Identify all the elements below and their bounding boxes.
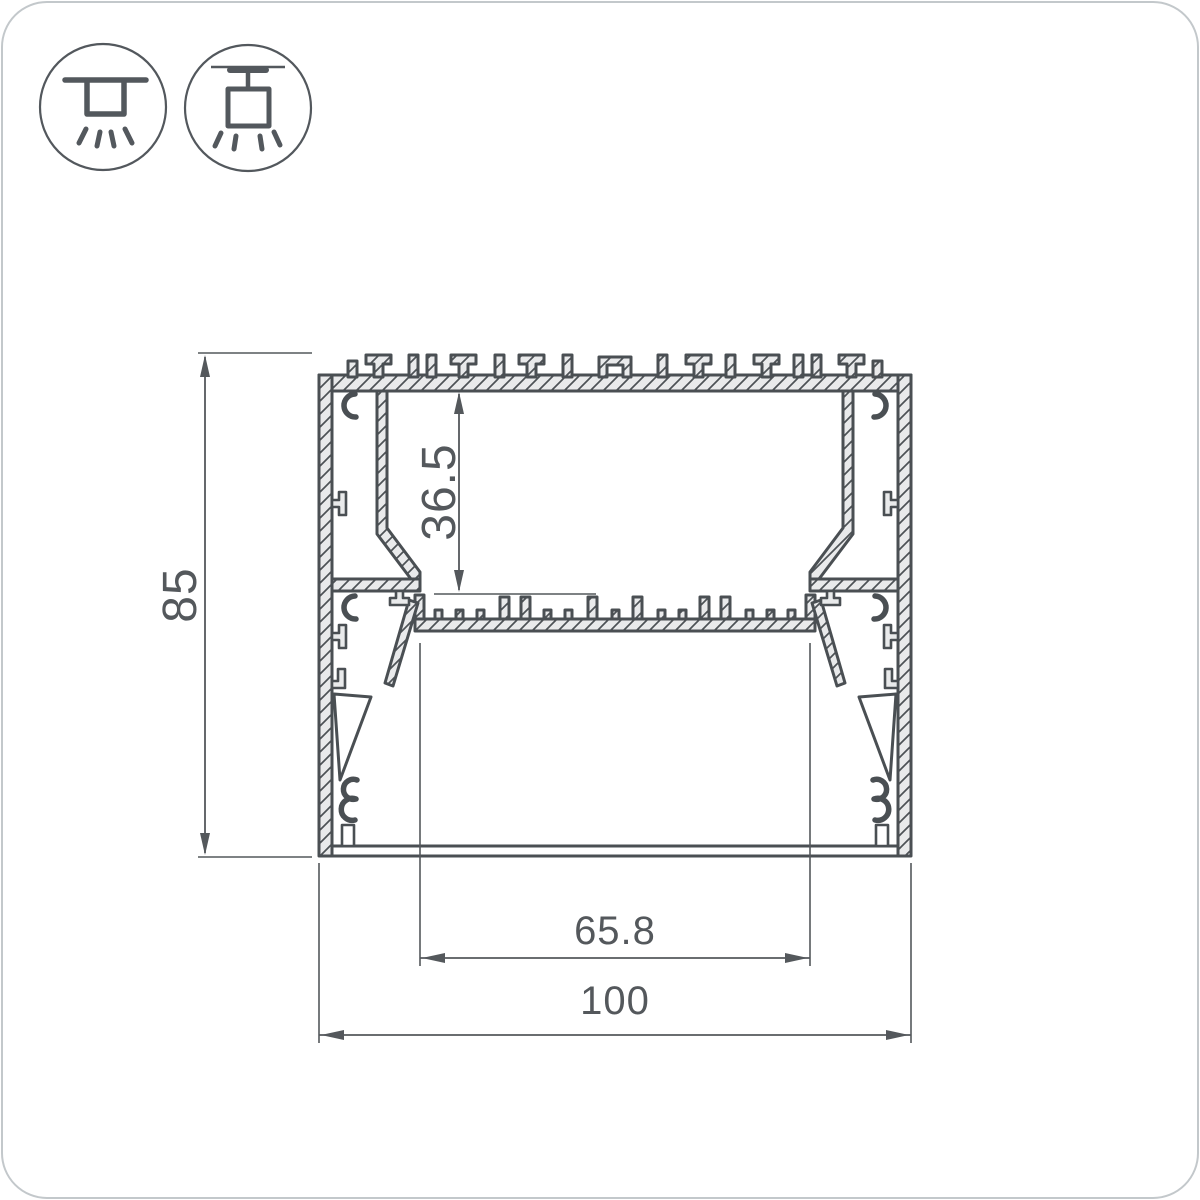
profile-cross-section bbox=[319, 355, 911, 856]
right-bracket-triangle bbox=[859, 694, 896, 780]
right-outer-wall bbox=[898, 375, 911, 856]
technical-drawing: 85 36.5 65.8 100 bbox=[3, 3, 1199, 1199]
icon-circle bbox=[40, 44, 166, 170]
middle-shelf bbox=[415, 595, 815, 631]
left-foot bbox=[342, 825, 354, 846]
dimensions: 85 36.5 65.8 100 bbox=[154, 353, 911, 1043]
dim-label-100: 100 bbox=[580, 979, 650, 1023]
left-bracket-triangle bbox=[334, 694, 371, 780]
mount-icons bbox=[40, 44, 311, 171]
surface-mount-icon bbox=[40, 44, 166, 170]
profile-box bbox=[228, 89, 269, 126]
arrow-up-icon bbox=[200, 355, 210, 377]
left-diagonal-strip bbox=[385, 600, 418, 686]
arrow-down-icon bbox=[454, 570, 464, 592]
arrow-left-icon bbox=[422, 953, 445, 963]
light-rays-icon bbox=[215, 132, 280, 149]
light-rays-icon bbox=[79, 129, 132, 146]
right-mid-ledge bbox=[810, 579, 898, 591]
dim-label-85: 85 bbox=[154, 567, 207, 622]
left-bottom-boss bbox=[341, 779, 357, 820]
arrow-left-icon bbox=[321, 1030, 344, 1040]
dim-inner-width-65-8: 65.8 bbox=[420, 643, 810, 966]
arrow-right-icon bbox=[785, 953, 808, 963]
arrow-right-icon bbox=[886, 1030, 909, 1040]
dim-width-100: 100 bbox=[319, 863, 911, 1043]
left-mid-ledge bbox=[332, 579, 420, 591]
arrow-down-icon bbox=[200, 833, 210, 855]
left-outer-wall bbox=[319, 375, 332, 856]
dim-inner-height-36-5: 36.5 bbox=[413, 392, 596, 594]
dim-label-36-5: 36.5 bbox=[413, 443, 466, 540]
right-diagonal-strip bbox=[812, 600, 845, 686]
profile-box bbox=[87, 80, 124, 114]
right-inner-wall bbox=[810, 391, 853, 579]
icon-circle bbox=[185, 45, 311, 171]
pendant-mount-icon bbox=[185, 45, 311, 171]
dim-height-85: 85 bbox=[154, 353, 312, 857]
arrow-up-icon bbox=[454, 392, 464, 414]
dim-label-65-8: 65.8 bbox=[574, 909, 656, 953]
image-rounded-frame: 85 36.5 65.8 100 bbox=[1, 1, 1199, 1199]
right-foot bbox=[876, 825, 888, 846]
right-bottom-boss bbox=[873, 779, 889, 820]
bottom-plate bbox=[332, 846, 898, 856]
